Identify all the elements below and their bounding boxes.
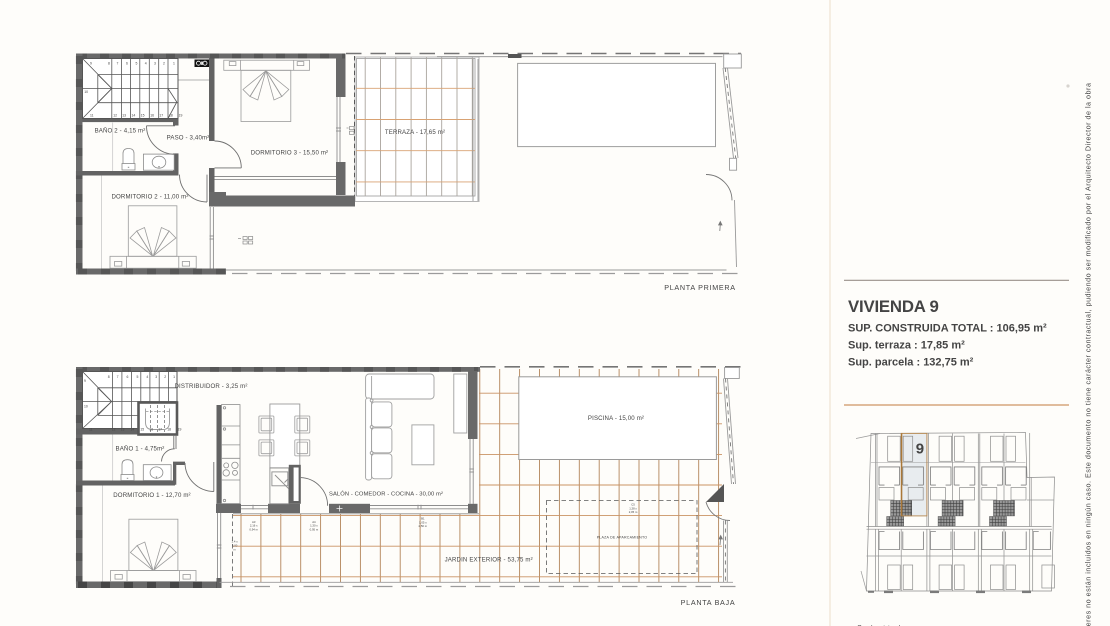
svg-text:TERRAZA - 17,65 m²: TERRAZA - 17,65 m² [385, 129, 445, 136]
svg-text:BAÑO 1 - 4,75m²: BAÑO 1 - 4,75m² [116, 445, 165, 452]
svg-text:DORMITORIO 1 - 12,70 m²: DORMITORIO 1 - 12,70 m² [113, 492, 191, 499]
svg-text:PLAZA DE APARCAMIENTO: PLAZA DE APARCAMIENTO [597, 535, 648, 539]
svg-text:DISTRIBUIDOR - 3,25 m²: DISTRIBUIDOR - 3,25 m² [174, 383, 247, 390]
svg-text:18: 18 [169, 114, 173, 118]
svg-text:2,50 m: 2,50 m [419, 524, 428, 528]
svg-text:1: 1 [173, 375, 175, 379]
svg-text:14: 14 [132, 114, 136, 118]
svg-text:16: 16 [150, 114, 154, 118]
svg-text:SALÓN - COMEDOR - COCINA - 30,: SALÓN - COMEDOR - COCINA - 30,00 m² [329, 490, 443, 497]
svg-text:DORMITORIO 2 - 11,00 m²: DORMITORIO 2 - 11,00 m² [111, 194, 188, 201]
svg-text:PISCINA - 15,00 m²: PISCINA - 15,00 m² [588, 415, 644, 422]
svg-text:DORMITORIO 3 - 15,50 m²: DORMITORIO 3 - 15,50 m² [251, 150, 329, 157]
svg-text:17: 17 [159, 114, 163, 118]
svg-text:14: 14 [131, 427, 135, 431]
svg-text:18: 18 [167, 427, 171, 431]
svg-text:9: 9 [90, 61, 92, 65]
svg-text:6: 6 [127, 375, 129, 379]
svg-text:15: 15 [140, 427, 144, 431]
svg-text:SUP. CONSTRUIDA TOTAL : 106,95: SUP. CONSTRUIDA TOTAL : 106,95 m² [848, 323, 1047, 335]
svg-text:10: 10 [84, 405, 88, 409]
svg-text:3: 3 [155, 375, 157, 379]
svg-text:JARDIN EXTERIOR - 53,75 m²: JARDIN EXTERIOR - 53,75 m² [445, 557, 533, 564]
svg-text:5: 5 [136, 61, 138, 65]
svg-text:17: 17 [158, 427, 162, 431]
svg-text:BAÑO 2 - 4,15 m²: BAÑO 2 - 4,15 m² [95, 128, 146, 135]
svg-text:4: 4 [145, 61, 147, 65]
svg-text:19: 19 [179, 114, 183, 118]
svg-text:Sup. parcela : 132,75 m²: Sup. parcela : 132,75 m² [848, 357, 974, 369]
svg-text:0,95 m: 0,95 m [310, 528, 319, 532]
svg-text:1: 1 [173, 61, 175, 65]
svg-text:8: 8 [108, 61, 110, 65]
svg-text:PLANTA BAJA: PLANTA BAJA [681, 598, 736, 607]
svg-text:12: 12 [112, 427, 116, 431]
svg-text:12: 12 [113, 114, 117, 118]
svg-text:6: 6 [126, 61, 128, 65]
svg-text:VIVIENDA 9: VIVIENDA 9 [848, 297, 939, 316]
svg-text:2: 2 [164, 375, 166, 379]
svg-text:7: 7 [117, 61, 119, 65]
svg-text:Sup. terraza : 17,85 m²: Sup. terraza : 17,85 m² [848, 340, 965, 352]
svg-text:13: 13 [121, 427, 125, 431]
svg-text:8: 8 [108, 375, 110, 379]
svg-text:4: 4 [146, 375, 148, 379]
svg-text:13: 13 [122, 114, 126, 118]
svg-text:11: 11 [90, 114, 94, 118]
svg-text:s enseres no están incluidos e: s enseres no están incluidos en ningún c… [1084, 83, 1093, 626]
svg-text:15: 15 [141, 114, 145, 118]
svg-text:PASO - 3,40m²: PASO - 3,40m² [167, 135, 210, 142]
svg-text:7: 7 [117, 375, 119, 379]
svg-text:2,05 m: 2,05 m [629, 510, 638, 514]
svg-text:16: 16 [149, 427, 153, 431]
svg-text:10: 10 [84, 90, 88, 94]
svg-text:11: 11 [89, 427, 93, 431]
svg-text:0,94 m: 0,94 m [249, 528, 258, 532]
svg-text:5: 5 [136, 375, 138, 379]
svg-text:9: 9 [916, 441, 924, 458]
svg-text:19: 19 [178, 427, 182, 431]
svg-text:2: 2 [163, 61, 165, 65]
svg-text:9: 9 [84, 379, 86, 383]
svg-text:3: 3 [154, 61, 156, 65]
svg-text:PLANTA PRIMERA: PLANTA PRIMERA [664, 283, 736, 292]
